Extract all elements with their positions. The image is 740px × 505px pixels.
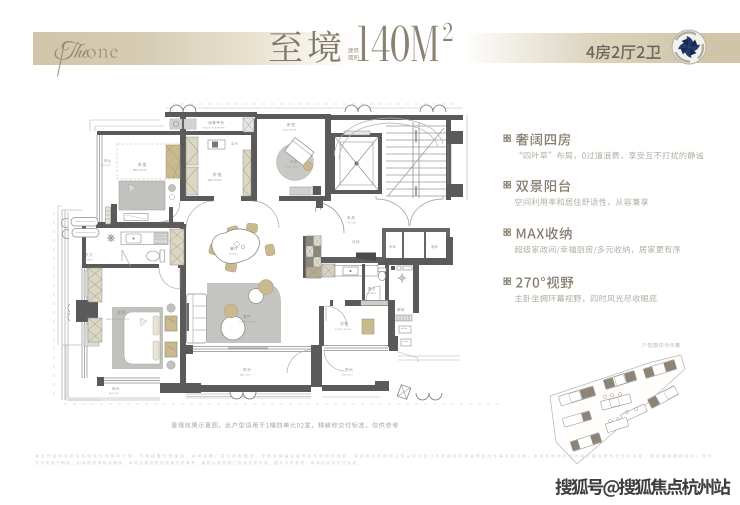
svg-text:STUDY ROOM: STUDY ROOM — [335, 329, 351, 331]
svg-text:BALCONY: BALCONY — [342, 374, 353, 377]
svg-text:DINING: DINING — [229, 254, 238, 256]
svg-text:STUDY ROOM: STUDY ROOM — [285, 167, 300, 169]
svg-text:BED ROOM: BED ROOM — [208, 180, 222, 182]
svg-text:G.BATH: G.BATH — [368, 292, 377, 295]
svg-text:FOYER: FOYER — [348, 223, 357, 225]
svg-text:BED ROOM: BED ROOM — [283, 130, 296, 132]
svg-text:EQUIP. PLATFORM: EQUIP. PLATFORM — [203, 127, 225, 130]
svg-text:BALCONY: BALCONY — [240, 374, 251, 377]
svg-text:BED ROOM: BED ROOM — [133, 170, 147, 172]
svg-text:M.BATH: M.BATH — [85, 259, 94, 262]
svg-text:LIVING ROOM: LIVING ROOM — [239, 322, 255, 324]
svg-text:MASTER BEDROOM: MASTER BEDROOM — [106, 318, 129, 321]
svg-text:BALCONY: BALCONY — [101, 164, 112, 167]
svg-text:BALCONY: BALCONY — [109, 392, 120, 395]
